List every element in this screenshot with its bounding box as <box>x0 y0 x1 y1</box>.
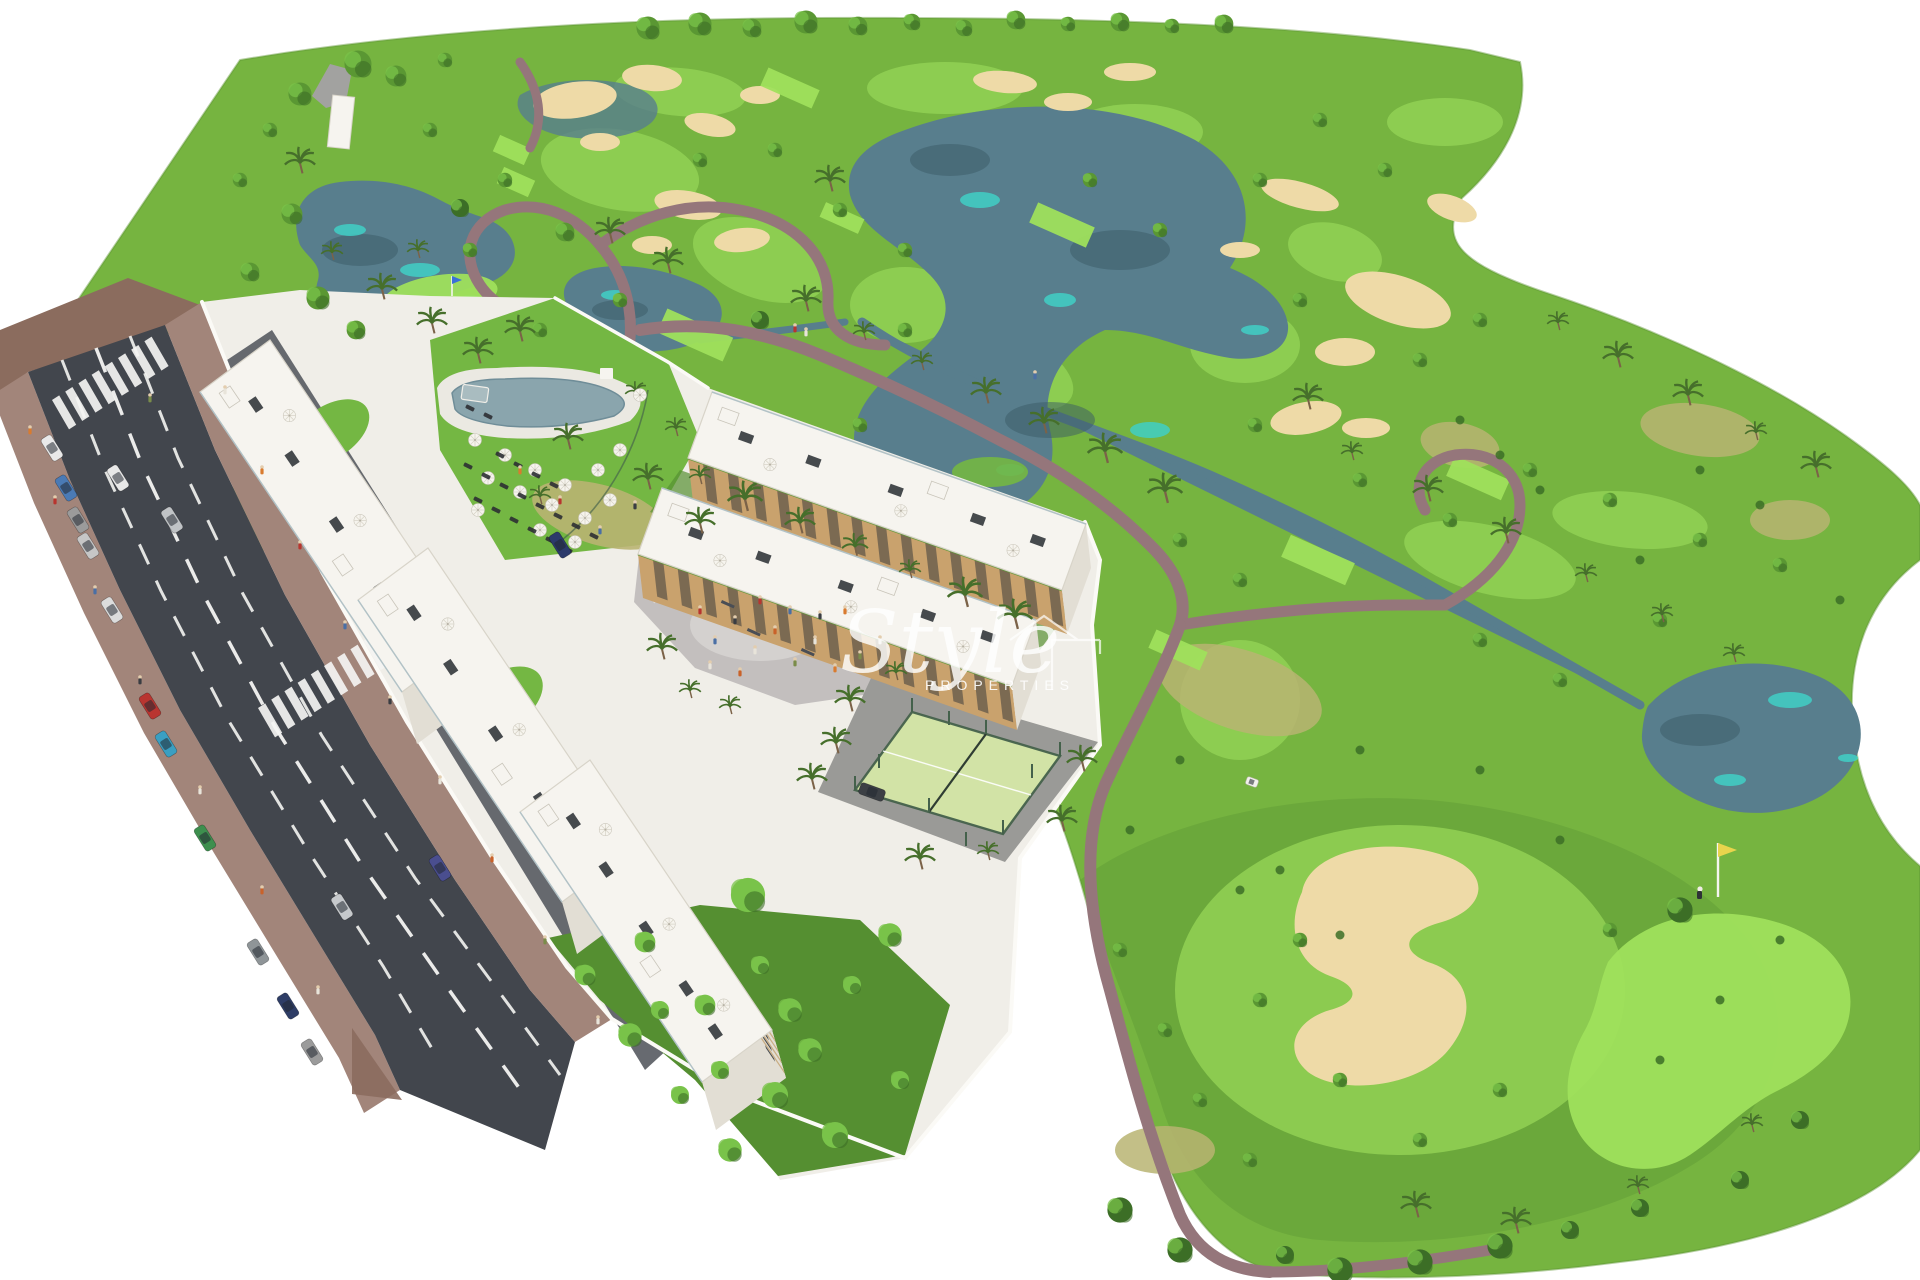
person-body <box>793 326 796 332</box>
person-dot <box>198 785 202 794</box>
person-dot <box>148 393 152 402</box>
person-head <box>316 985 320 989</box>
tree-icon <box>533 323 547 337</box>
person-dot <box>633 500 637 509</box>
water-highlight <box>1768 692 1812 708</box>
person-dot <box>788 605 792 614</box>
person-head <box>773 625 777 629</box>
person-head <box>733 615 737 619</box>
person-body <box>198 788 201 794</box>
person-head <box>753 645 757 649</box>
tree-icon <box>1603 493 1617 507</box>
person-dot <box>733 615 737 624</box>
parasol-icon <box>559 479 572 492</box>
person-dot <box>298 540 302 549</box>
parasol-icon <box>592 464 605 477</box>
shrub <box>1556 836 1565 845</box>
tree-icon <box>743 19 762 38</box>
person-body <box>773 628 776 634</box>
shrub <box>1696 466 1705 475</box>
tree-icon <box>833 203 847 217</box>
tree-icon <box>498 173 512 187</box>
car <box>246 938 270 966</box>
person-dot <box>343 620 347 629</box>
parasol-icon <box>614 444 627 457</box>
person-dot <box>438 775 442 784</box>
person-dot <box>753 645 757 654</box>
person-dot <box>490 853 494 862</box>
tree-icon <box>1173 533 1187 547</box>
person-head <box>260 465 264 469</box>
tree-icon <box>1313 113 1327 127</box>
person-dot <box>804 327 808 336</box>
person-head <box>518 465 522 469</box>
tree-icon <box>798 1038 821 1061</box>
tree-icon <box>1333 1073 1347 1087</box>
pool-pavilion <box>600 368 613 379</box>
person-dot <box>773 625 777 634</box>
roof-parasol-icon <box>663 918 675 930</box>
person-head <box>804 327 808 331</box>
shrub <box>1176 756 1185 765</box>
tree-icon <box>762 1082 788 1108</box>
person-head <box>708 660 712 664</box>
tree-icon <box>1443 513 1457 527</box>
parasol-icon <box>604 494 617 507</box>
tree-icon <box>556 223 575 242</box>
tree-icon <box>1653 613 1667 627</box>
person-dot <box>1033 370 1037 379</box>
roof-parasol-icon <box>714 554 726 566</box>
tree-icon <box>1413 353 1427 367</box>
water-shadow <box>1660 714 1740 746</box>
parasol-icon <box>472 504 485 517</box>
person-body <box>298 543 301 549</box>
shrub <box>1236 886 1245 895</box>
shrub <box>1126 826 1135 835</box>
person-dot <box>28 425 32 434</box>
bunker <box>1220 242 1260 258</box>
water-highlight <box>1130 422 1170 438</box>
tree-icon <box>878 923 901 946</box>
person-head <box>198 785 202 789</box>
tree-icon <box>1253 993 1267 1007</box>
tree-icon <box>1473 313 1487 327</box>
tree-icon <box>794 10 817 33</box>
tree-icon <box>288 82 311 105</box>
water-shadow <box>910 144 990 176</box>
person-body <box>733 618 736 624</box>
person-dot <box>138 675 142 684</box>
shrub <box>1356 746 1365 755</box>
person-body <box>438 778 441 784</box>
shrub <box>1336 931 1345 940</box>
person-head <box>813 635 817 639</box>
small-structure <box>327 95 354 149</box>
tree-icon <box>693 153 707 167</box>
tree-icon <box>731 878 765 912</box>
tree-icon <box>1083 173 1097 187</box>
tree-icon <box>904 14 921 31</box>
tree-icon <box>718 1138 741 1161</box>
person-body <box>596 1018 599 1024</box>
person-dot <box>260 885 264 894</box>
person-body <box>804 330 807 336</box>
parasol-icon <box>634 389 647 402</box>
tree-icon <box>282 204 303 225</box>
watermark-subtitle: PROPERTIES <box>925 677 1075 693</box>
person-dot <box>53 495 57 504</box>
person-head <box>558 495 562 499</box>
person-dot <box>596 1015 600 1024</box>
person-body <box>713 638 716 644</box>
person-head <box>298 540 302 544</box>
person-dot <box>316 985 320 994</box>
tree-icon <box>1773 558 1787 572</box>
person-body <box>316 988 319 994</box>
roof-parasol-icon <box>599 823 611 835</box>
tree-icon <box>751 311 769 329</box>
tree-icon <box>1293 933 1307 947</box>
person-body <box>543 938 546 944</box>
person-head <box>596 1015 600 1019</box>
person-head <box>793 657 797 661</box>
tree-icon <box>711 1061 729 1079</box>
tree-icon <box>1487 1233 1512 1258</box>
person-dot <box>813 635 817 644</box>
tree-icon <box>306 286 329 309</box>
tree-icon <box>1111 13 1130 32</box>
person-head <box>148 393 152 397</box>
shrub <box>1636 556 1645 565</box>
tree-icon <box>575 965 596 986</box>
person-dot <box>793 323 797 332</box>
tree-icon <box>263 123 277 137</box>
tree-icon <box>1693 533 1707 547</box>
tree-icon <box>345 51 372 78</box>
tree-icon <box>1791 1111 1809 1129</box>
tree-icon <box>438 53 452 67</box>
person-body <box>598 528 601 534</box>
spa <box>461 384 489 402</box>
tree-icon <box>849 17 868 36</box>
person-head <box>490 853 494 857</box>
tree-icon <box>1603 923 1617 937</box>
person-body <box>698 608 701 614</box>
tree-icon <box>1215 15 1234 34</box>
water-highlight <box>1714 774 1746 786</box>
tree-icon <box>386 66 407 87</box>
water-highlight <box>400 263 440 277</box>
person-body <box>223 388 226 394</box>
person-dot <box>558 495 562 504</box>
person-dot <box>223 385 227 394</box>
shrub <box>1716 996 1725 1005</box>
person-body <box>260 468 263 474</box>
shrub <box>1456 416 1465 425</box>
person-head <box>93 585 97 589</box>
tree-icon <box>695 995 716 1016</box>
tree-icon <box>1243 1153 1257 1167</box>
tree-icon <box>1276 1246 1294 1264</box>
person-dot <box>93 585 97 594</box>
tree-icon <box>1561 1221 1579 1239</box>
tree-icon <box>1107 1197 1132 1222</box>
person-head <box>343 620 347 624</box>
roof-parasol-icon <box>764 458 776 470</box>
tree-icon <box>1413 1133 1427 1147</box>
parasol-icon <box>579 512 592 525</box>
tree-icon <box>822 1122 848 1148</box>
tree-icon <box>1493 1083 1507 1097</box>
person-body <box>388 698 391 704</box>
tree-icon <box>956 20 973 37</box>
tree-icon <box>1667 897 1692 922</box>
roof-parasol-icon <box>513 724 525 736</box>
tree-icon <box>1153 223 1167 237</box>
roof-parasol-icon <box>1007 544 1019 556</box>
person-head <box>738 667 742 671</box>
person-body <box>708 663 711 669</box>
person-body <box>260 888 263 894</box>
person-body <box>818 613 821 619</box>
tree-icon <box>853 418 867 432</box>
person-head <box>818 610 822 614</box>
tree-icon <box>1378 163 1392 177</box>
person-body <box>833 666 836 672</box>
person-body <box>28 428 31 434</box>
shrub <box>1476 766 1485 775</box>
person-dot <box>518 465 522 474</box>
water-highlight <box>334 224 366 236</box>
person-dot <box>833 663 837 672</box>
shrub <box>1536 486 1545 495</box>
person-dot <box>818 610 822 619</box>
person-head <box>438 775 442 779</box>
person-dot <box>793 657 797 666</box>
person-head <box>788 605 792 609</box>
water-highlight <box>1838 754 1858 762</box>
person-body <box>633 503 636 509</box>
bunker <box>1342 418 1390 438</box>
fairway <box>1387 98 1503 146</box>
tree-icon <box>1407 1249 1432 1274</box>
tree-icon <box>636 16 659 39</box>
tree-icon <box>778 998 801 1021</box>
person-head <box>53 495 57 499</box>
tree-icon <box>891 1071 909 1089</box>
shrub <box>1836 596 1845 605</box>
tree-icon <box>618 1023 641 1046</box>
person-body <box>53 498 56 504</box>
person-head <box>793 323 797 327</box>
shrub <box>1756 501 1765 510</box>
tree-icon <box>671 1086 689 1104</box>
person-head <box>223 385 227 389</box>
tree-icon <box>751 956 769 974</box>
tree-icon <box>451 199 469 217</box>
aerial-render-stage: Style PROPERTIES <box>0 0 1920 1280</box>
person-body <box>518 468 521 474</box>
parasol-icon <box>546 499 559 512</box>
person-head <box>260 885 264 889</box>
person-head <box>1033 370 1037 374</box>
tree-icon <box>233 173 247 187</box>
tree-icon <box>613 293 627 307</box>
tree-icon <box>768 143 782 157</box>
tree-icon <box>463 243 477 257</box>
car <box>276 992 300 1020</box>
tree-icon <box>688 12 711 35</box>
person-body <box>93 588 96 594</box>
person-body <box>138 678 141 684</box>
roof-parasol-icon <box>895 505 907 517</box>
tree-icon <box>1253 173 1267 187</box>
person-body <box>753 648 756 654</box>
tree-icon <box>635 932 656 953</box>
tree-icon <box>1193 1093 1207 1107</box>
shrub <box>1776 936 1785 945</box>
tree-icon <box>1293 293 1307 307</box>
tree-icon <box>1523 463 1537 477</box>
tree-icon <box>423 123 437 137</box>
roof-parasol-icon <box>283 409 295 421</box>
person-dot <box>758 595 762 604</box>
tree-icon <box>898 243 912 257</box>
person-body <box>788 608 791 614</box>
person-head <box>713 635 717 639</box>
person-body <box>490 856 493 862</box>
person-body <box>148 396 151 402</box>
roof-parasol-icon <box>442 618 454 630</box>
shrub <box>1276 866 1285 875</box>
tree-icon <box>1061 17 1075 31</box>
person-head <box>138 675 142 679</box>
tree-icon <box>241 263 260 282</box>
person-body <box>343 623 346 629</box>
roof-parasol-icon <box>354 514 366 526</box>
person-dot <box>738 667 742 676</box>
bunker <box>1104 63 1156 81</box>
shrub <box>1496 451 1505 460</box>
person-dot <box>598 525 602 534</box>
tree-icon <box>843 976 861 994</box>
person-head <box>833 663 837 667</box>
tree-icon <box>898 323 912 337</box>
tree-icon <box>651 1001 669 1019</box>
tree-icon <box>1113 943 1127 957</box>
bunker <box>1044 93 1092 111</box>
tree-icon <box>1248 418 1262 432</box>
tree-icon <box>1631 1199 1649 1217</box>
bunker <box>1315 338 1375 366</box>
person-head <box>28 425 32 429</box>
person-dot <box>708 660 712 669</box>
parasol-icon <box>469 434 482 447</box>
tree-icon <box>1353 473 1367 487</box>
person-head <box>758 595 762 599</box>
person-dot <box>260 465 264 474</box>
person-body <box>558 498 561 504</box>
parasol-icon <box>569 536 582 549</box>
water-highlight <box>1241 325 1269 335</box>
person-dot <box>698 605 702 614</box>
person-head <box>543 935 547 939</box>
bunker <box>580 133 620 151</box>
tree-icon <box>1165 19 1179 33</box>
person-dot <box>543 935 547 944</box>
tree-icon <box>347 321 366 340</box>
tree-icon <box>1167 1237 1192 1262</box>
person-body <box>738 670 741 676</box>
person-dot <box>388 695 392 704</box>
person-body <box>813 638 816 644</box>
water-highlight <box>960 192 1000 208</box>
car <box>300 1038 324 1066</box>
person-head <box>598 525 602 529</box>
water-highlight <box>1044 293 1076 307</box>
golf-resort-aerial-render: Style PROPERTIES <box>0 0 1920 1280</box>
tree-icon <box>1233 573 1247 587</box>
shrub <box>1656 1056 1665 1065</box>
person-head <box>633 500 637 504</box>
tree-icon <box>1007 11 1026 30</box>
roof-parasol-icon <box>718 999 730 1011</box>
person-body <box>1033 373 1036 379</box>
tree-icon <box>1158 1023 1172 1037</box>
person-head <box>698 605 702 609</box>
person-head <box>388 695 392 699</box>
tree-icon <box>1553 673 1567 687</box>
person-body <box>758 598 761 604</box>
tree-icon <box>1731 1171 1749 1189</box>
tree-icon <box>1473 633 1487 647</box>
person-dot <box>713 635 717 644</box>
person-body <box>793 660 796 666</box>
